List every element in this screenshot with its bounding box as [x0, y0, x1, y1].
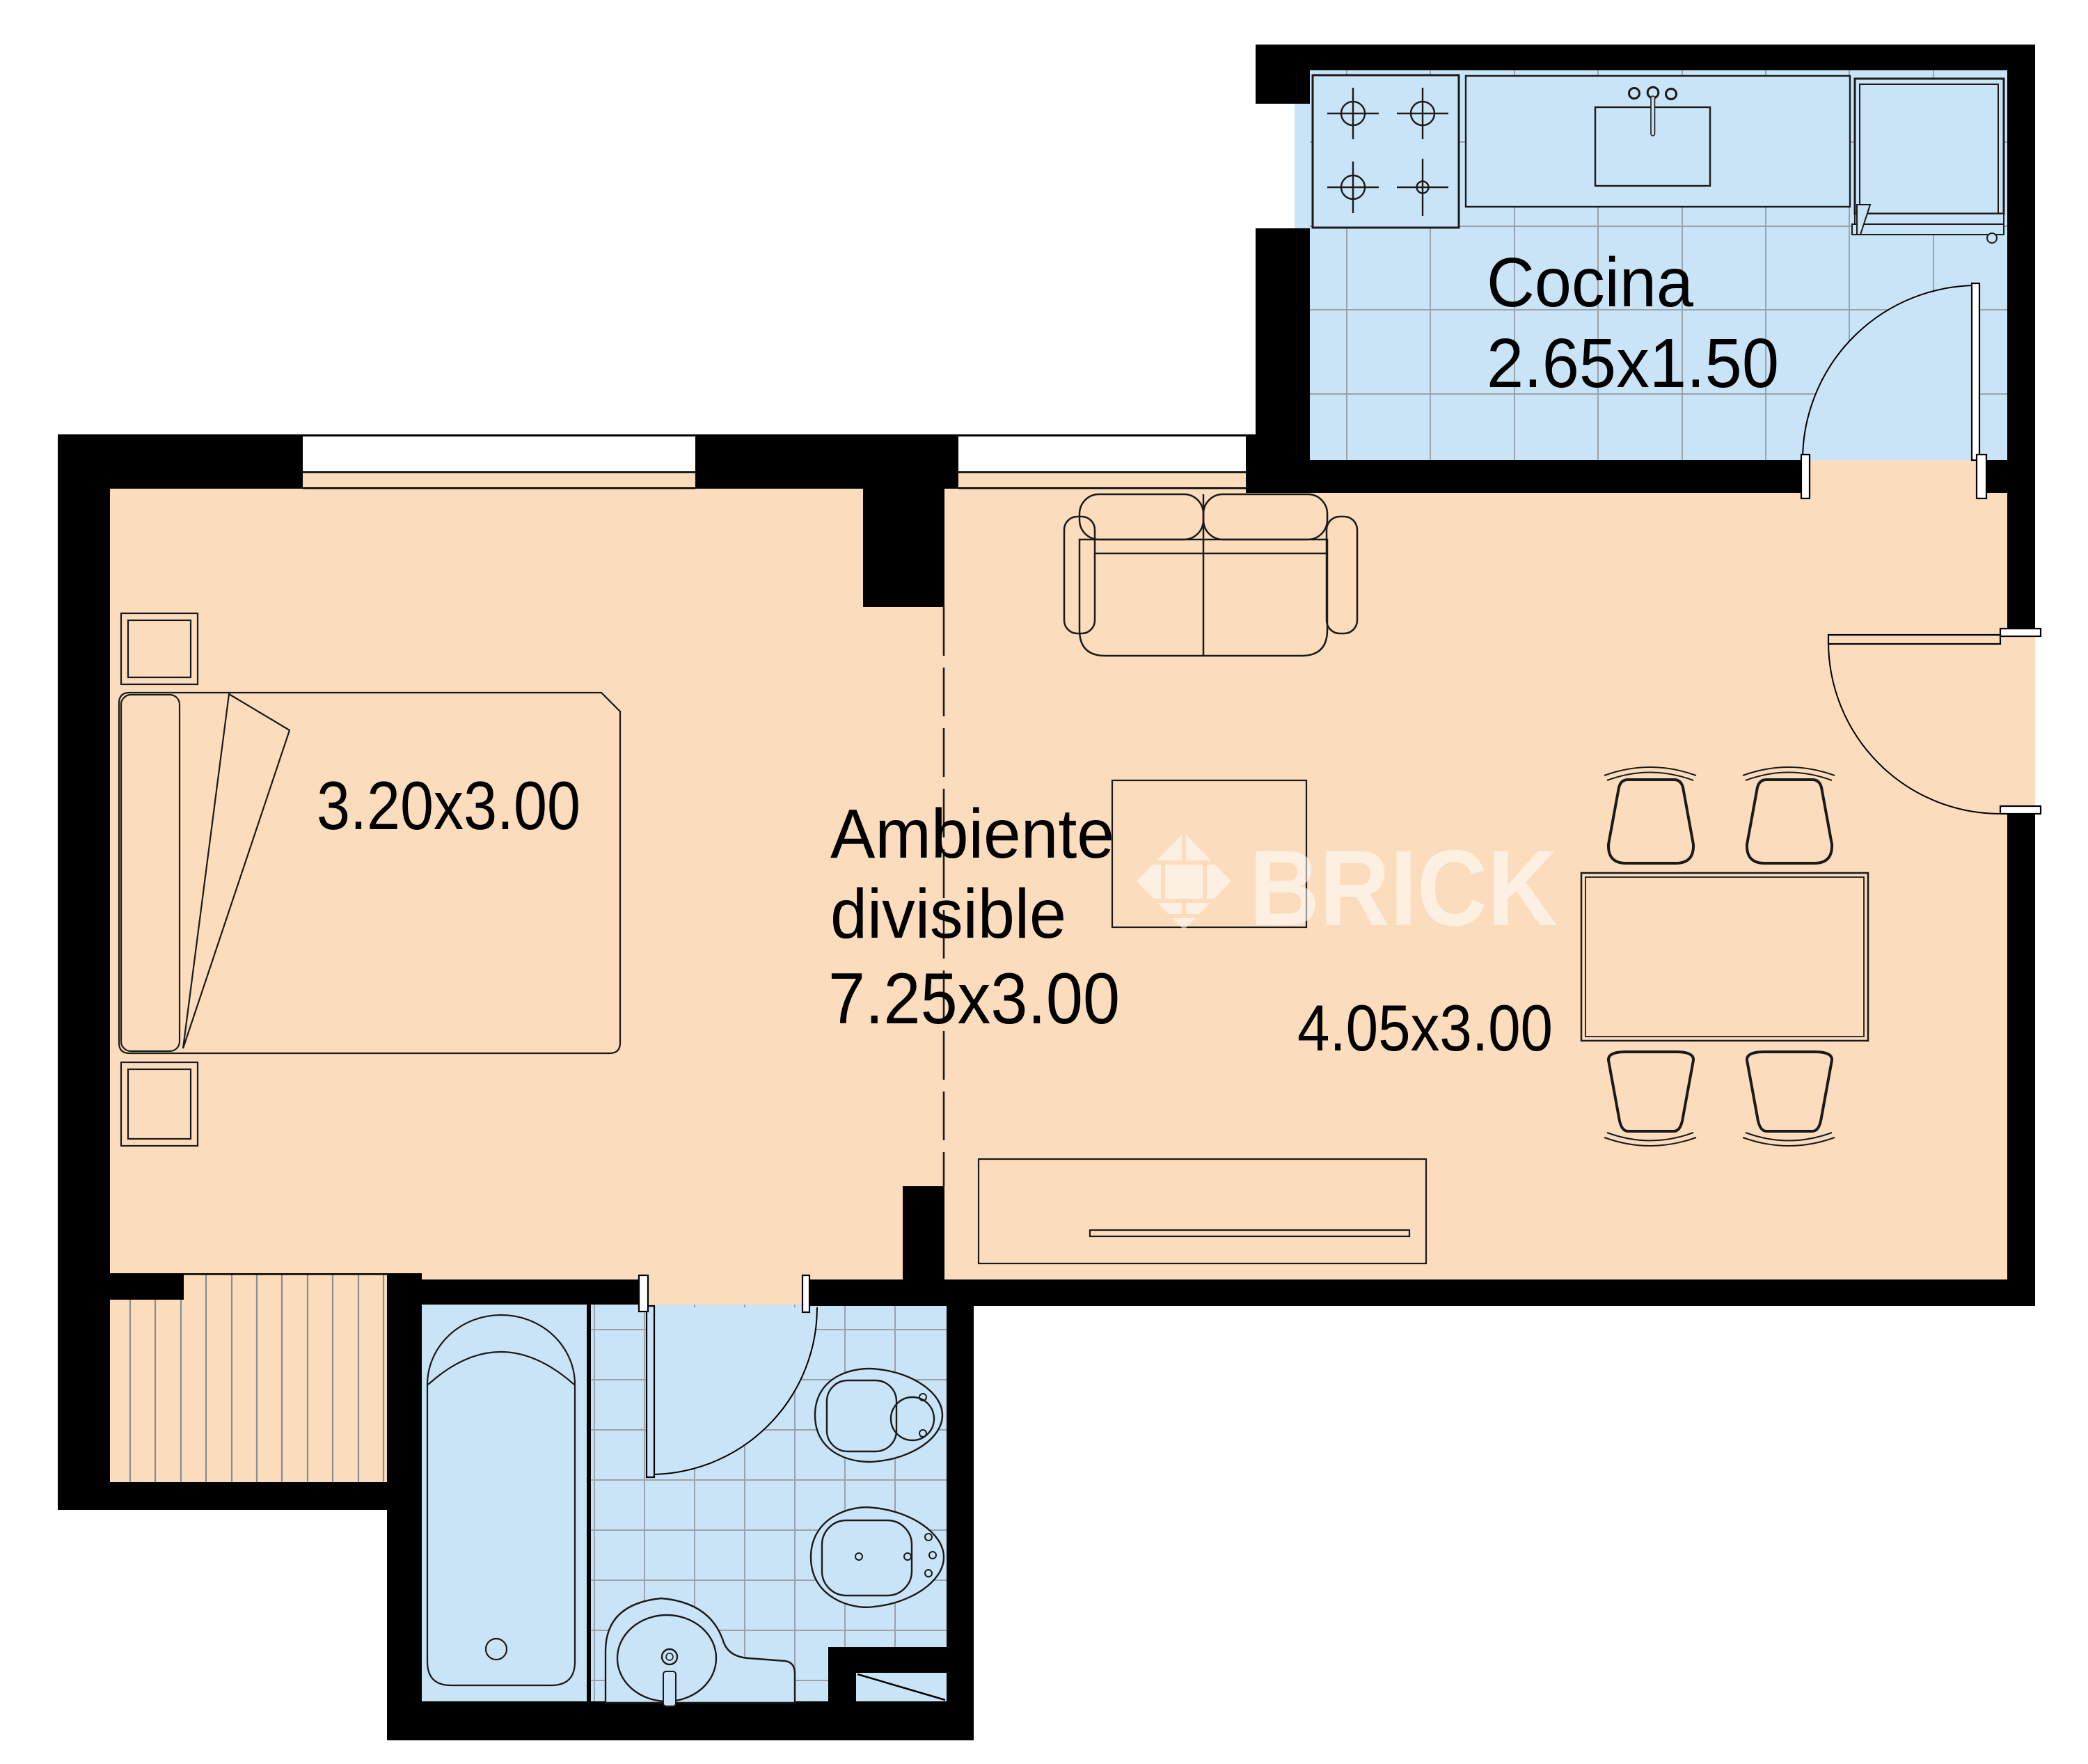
svg-text:7.25x3.00: 7.25x3.00	[828, 959, 1120, 1039]
svg-text:Ambiente: Ambiente	[830, 795, 1114, 873]
svg-text:4.05x3.00: 4.05x3.00	[1297, 991, 1553, 1064]
svg-text:Cocina: Cocina	[1487, 244, 1693, 322]
svg-text:BRICK: BRICK	[1249, 828, 1558, 948]
svg-text:divisible: divisible	[830, 875, 1066, 953]
svg-text:3.20x3.00: 3.20x3.00	[317, 767, 580, 844]
svg-text:2.65x1.50: 2.65x1.50	[1487, 324, 1779, 402]
